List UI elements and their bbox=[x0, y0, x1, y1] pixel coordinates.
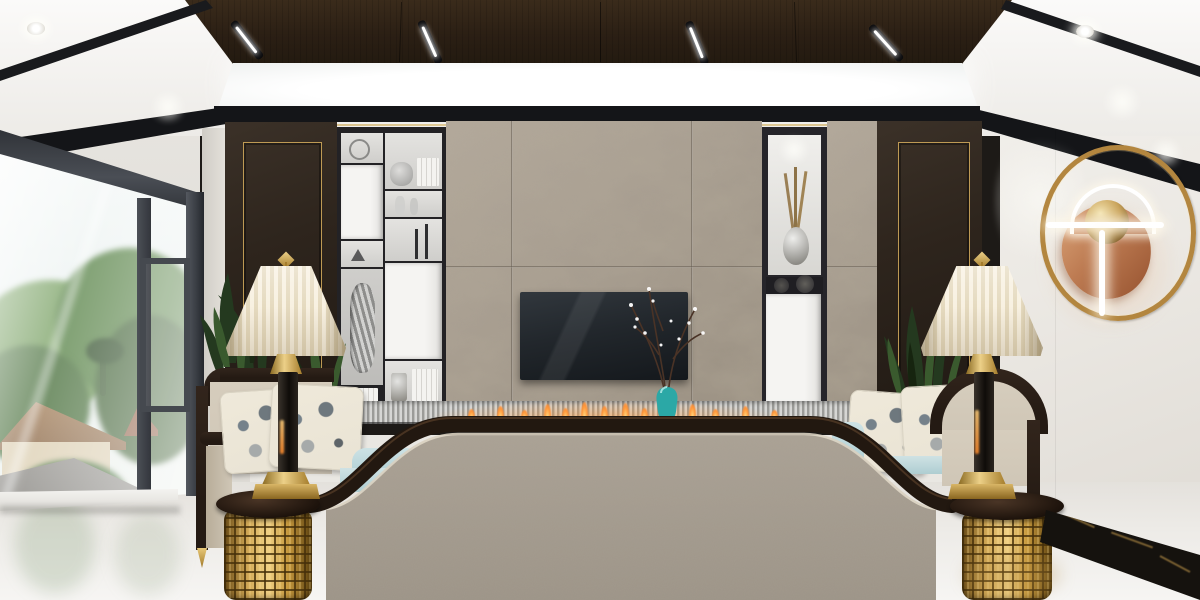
small-vase bbox=[410, 198, 418, 215]
table-lamp-left bbox=[226, 250, 346, 502]
lamp-shade bbox=[921, 266, 1043, 356]
shelf-cell bbox=[385, 133, 442, 189]
niche-back bbox=[768, 135, 821, 275]
tripod-decor bbox=[351, 249, 365, 261]
niche-shelf bbox=[766, 277, 823, 294]
recessed-downlight bbox=[27, 22, 45, 35]
shelf-cell bbox=[341, 133, 383, 163]
lamp-neck bbox=[270, 354, 302, 374]
lamp-shade bbox=[226, 266, 346, 356]
shelf-cell bbox=[385, 219, 442, 261]
wall-sconce-light-bar-horizontal bbox=[1046, 222, 1164, 228]
recessed-downlight bbox=[1076, 25, 1094, 38]
shelf-cell bbox=[385, 191, 442, 217]
white-cabinet-door bbox=[341, 165, 383, 239]
books bbox=[417, 158, 439, 186]
gold-fretwork-drum bbox=[224, 510, 312, 600]
wall-sconce-light-bar-vertical bbox=[1099, 230, 1105, 316]
chair-gold-foot bbox=[197, 548, 207, 568]
white-cabinet-door bbox=[385, 263, 442, 359]
lamp-base bbox=[252, 484, 320, 499]
sill-shadow bbox=[0, 506, 180, 514]
table-floor-reflection bbox=[965, 555, 1060, 595]
display-niche-right bbox=[762, 127, 827, 410]
lamp-column bbox=[278, 372, 298, 476]
panel-seam bbox=[511, 121, 513, 403]
side-table-left bbox=[216, 490, 320, 600]
candlestick bbox=[415, 229, 418, 259]
silver-vase bbox=[783, 227, 809, 265]
living-room-render bbox=[0, 0, 1200, 600]
niche-light bbox=[776, 137, 812, 163]
lamp-base bbox=[948, 484, 1016, 499]
panel-seam bbox=[827, 266, 877, 268]
gold-vein bbox=[1160, 555, 1191, 573]
sofa-back bbox=[300, 413, 960, 600]
flame-reflection bbox=[975, 410, 979, 454]
wire-sphere-decor bbox=[349, 139, 370, 160]
decor-plate bbox=[774, 278, 789, 293]
table-lamp-right bbox=[921, 250, 1043, 502]
ceiling-black-trim bbox=[214, 106, 980, 122]
cove-light-band bbox=[218, 63, 978, 108]
small-vase bbox=[395, 196, 405, 215]
ceiling-seam bbox=[600, 2, 601, 62]
dried-reed bbox=[796, 171, 808, 235]
spotlight-glow bbox=[148, 92, 188, 122]
lamp-neck bbox=[966, 354, 998, 374]
silver-teapot bbox=[390, 162, 413, 186]
lamp-column bbox=[974, 372, 994, 476]
lamp-base bbox=[262, 472, 310, 485]
white-cabinet-door bbox=[766, 294, 821, 404]
window-casement bbox=[140, 258, 190, 412]
floor-tree-reflection bbox=[115, 515, 180, 595]
lamp-base bbox=[958, 472, 1006, 485]
candlestick bbox=[425, 224, 428, 259]
flame-reflection bbox=[280, 420, 284, 454]
spotlight-glow bbox=[1100, 85, 1144, 119]
panel-seam bbox=[446, 266, 762, 268]
decor-plate bbox=[796, 275, 814, 293]
